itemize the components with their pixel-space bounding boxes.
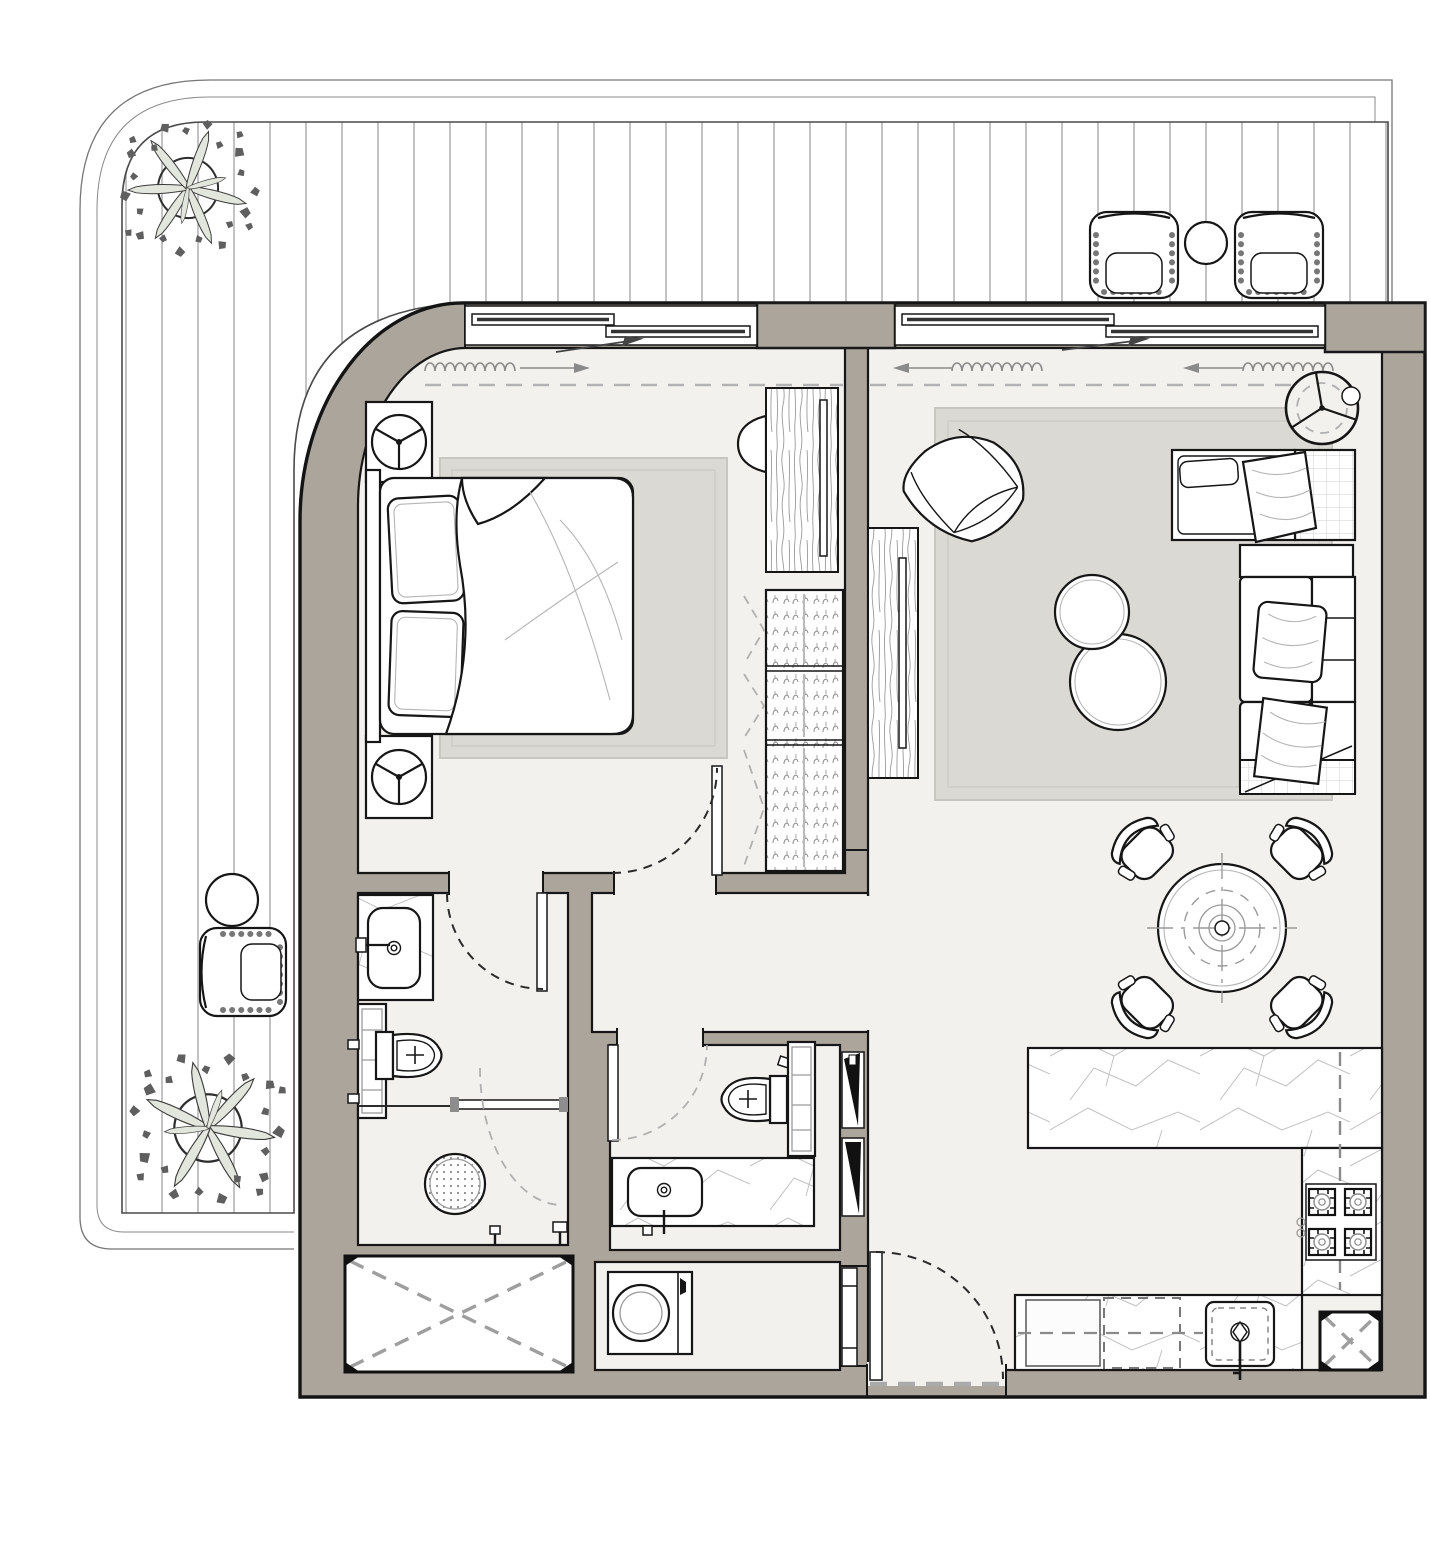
opening-guestbath-door: [617, 1030, 703, 1047]
opening-ensuite-door: [449, 871, 543, 895]
sofa-console: [1240, 545, 1353, 577]
floor-plan-drawing: [0, 0, 1430, 1561]
door-leaf: [870, 1252, 882, 1380]
floor-plan-page: [0, 0, 1430, 1561]
coffee-table-small: [1055, 575, 1129, 649]
wall-fixture: [348, 1094, 359, 1103]
washing-machine-icon: [608, 1272, 692, 1354]
floor-lamp-icon: [1286, 372, 1360, 444]
basin: [368, 908, 420, 988]
lumbar-pillow: [1253, 601, 1327, 683]
side-table-icon: [206, 874, 258, 926]
pillow: [387, 495, 464, 604]
tv-icon: [820, 400, 827, 556]
vanity: [356, 895, 433, 1000]
door-leaf: [537, 893, 547, 991]
tall-cabinet: [788, 1042, 815, 1156]
nightstand-bottom: [366, 736, 432, 818]
bedroom-window: [465, 306, 757, 345]
living-window: [895, 306, 1325, 345]
bed: [366, 470, 633, 742]
top-right-wall-block: [1325, 303, 1425, 352]
tv-icon: [899, 558, 906, 748]
service-shaft-large: [345, 1256, 573, 1372]
tv-cabinet: [868, 528, 918, 778]
window-pier: [757, 303, 895, 348]
side-table-icon: [1185, 222, 1227, 264]
shower-drain-icon: [425, 1154, 485, 1214]
opening-bedroom-door: [614, 871, 716, 895]
chaise-cushion: [1179, 458, 1239, 488]
vanity: [612, 1158, 814, 1235]
service-shaft-small: [1320, 1312, 1380, 1370]
wall-fixture: [348, 1040, 359, 1049]
opening-hall-living: [860, 896, 876, 1030]
shower-screen: [450, 1097, 568, 1112]
pillow: [388, 611, 464, 717]
kitchen-counter-top: [1028, 1048, 1382, 1148]
cooktop-icon: [1297, 1184, 1376, 1260]
headboard: [366, 470, 380, 742]
hallway-floor: [592, 893, 868, 1032]
door-leaf: [608, 1045, 618, 1141]
laundry-sliding-door: [842, 1268, 857, 1366]
